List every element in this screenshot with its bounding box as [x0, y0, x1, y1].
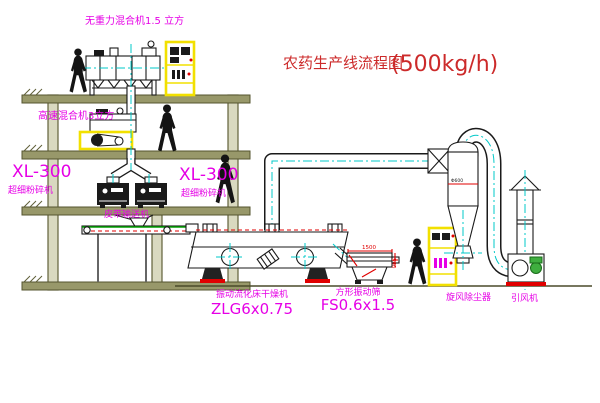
induced-draft-fan: [506, 254, 546, 286]
label-belt-conveyor: 皮带输送机: [104, 208, 149, 220]
label-mill-center-model: XL-300: [179, 165, 238, 185]
screen-length-dim: 1500: [362, 245, 376, 251]
label-mill-left-name: 超细粉碎机: [8, 184, 53, 196]
person-figure: [70, 48, 87, 92]
mixer-control-cabinet: [166, 42, 194, 95]
fluid-bed-dryer: [186, 224, 348, 283]
label-screen-model: FS0.6x1.5: [321, 296, 395, 314]
person-figure: [408, 238, 426, 284]
diagram-capacity: (500kg/h): [391, 52, 498, 77]
dryer-to-cyclone-duct: [272, 161, 452, 232]
person-figure: [158, 105, 177, 152]
diagram-title: 农药生产线流程图: [283, 54, 403, 72]
label-mill-center-name: 超细粉碎机: [181, 187, 226, 199]
label-fan: 引风机: [511, 292, 538, 304]
label-high-speed-mixer: 高速混合机3立方: [38, 109, 114, 122]
label-mill-left-model: XL-300: [12, 162, 71, 182]
pulverizer-left: [97, 174, 129, 208]
gravity-mixer: [82, 41, 164, 115]
label-dryer-model: ZLG6x0.75: [211, 300, 293, 318]
cyclone-diameter-note: Φ600: [451, 178, 463, 184]
screen-height-dim: 540: [390, 258, 396, 269]
label-dryer-name: 振动流化床干燥机: [216, 288, 288, 300]
drawing-canvas: Φ600 农药生产线流程图 (500kg/h) 无重力混合机1.5 立方 高速混…: [0, 0, 600, 403]
label-cyclone: 旋风除尘器: [446, 291, 491, 303]
screen-control-cabinet: [429, 228, 456, 285]
label-gravity-mixer: 无重力混合机1.5 立方: [85, 14, 184, 27]
cad-flow-diagram: Φ600 农药生产线流程图 (500kg/h) 无重力混合机1.5 立方 高速混…: [0, 0, 600, 403]
belt-conveyor: [82, 226, 190, 282]
